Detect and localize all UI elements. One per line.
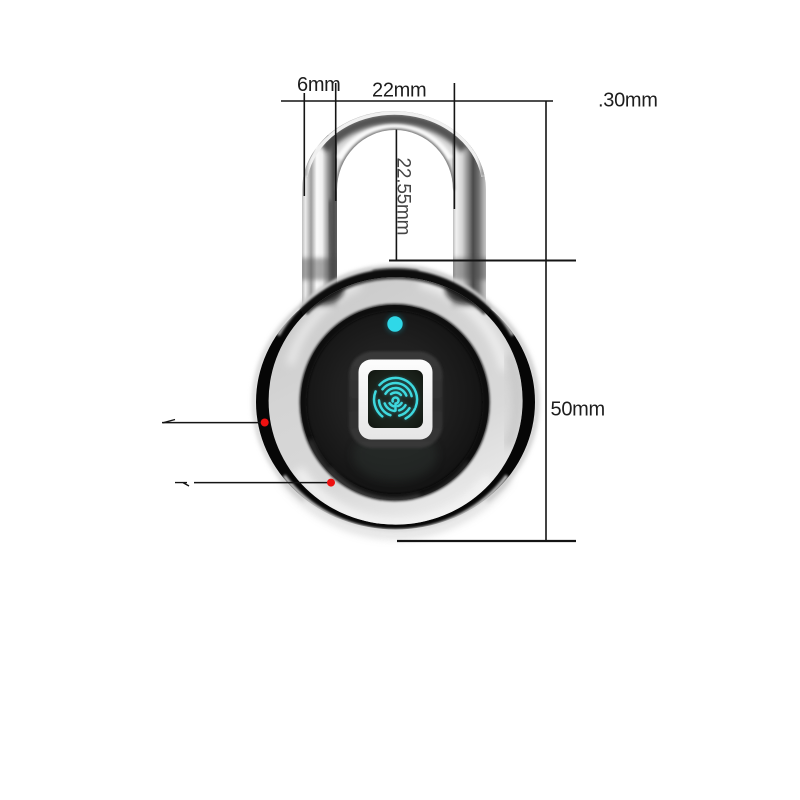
svg-text:6mm: 6mm [297, 74, 341, 96]
svg-text:.30mm: .30mm [598, 90, 658, 112]
svg-text:50mm: 50mm [551, 399, 605, 421]
svg-text:22.55mm: 22.55mm [393, 158, 414, 236]
svg-text:22mm: 22mm [372, 80, 426, 102]
